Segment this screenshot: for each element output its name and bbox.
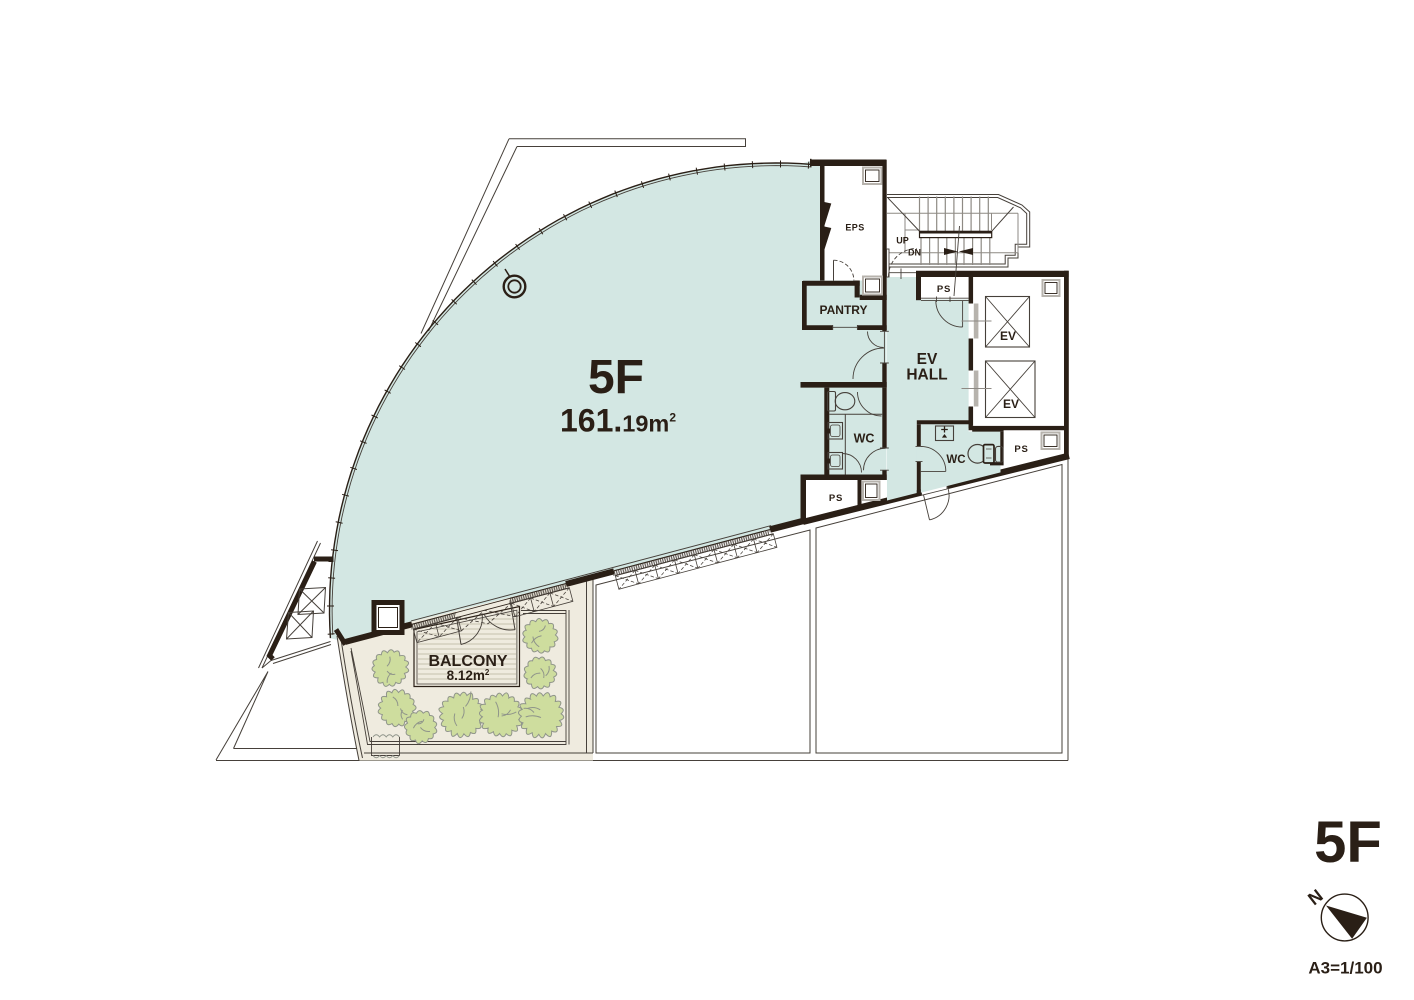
svg-text:8.12m2: 8.12m2 <box>447 668 490 683</box>
svg-text:HALL: HALL <box>906 367 947 384</box>
svg-text:5F: 5F <box>1314 810 1382 875</box>
svg-text:PS: PS <box>937 284 951 295</box>
svg-text:WC: WC <box>946 454 965 466</box>
svg-text:EV: EV <box>917 351 938 368</box>
svg-text:EV: EV <box>1000 329 1016 343</box>
svg-text:5F: 5F <box>588 351 644 404</box>
svg-text:EPS: EPS <box>845 223 864 233</box>
svg-text:PS: PS <box>1014 444 1028 455</box>
svg-text:WC: WC <box>854 432 875 446</box>
svg-text:PS: PS <box>829 493 843 504</box>
svg-text:PANTRY: PANTRY <box>820 303 868 317</box>
svg-text:A3=1/100: A3=1/100 <box>1308 959 1382 978</box>
svg-text:UP: UP <box>896 236 909 246</box>
svg-text:EV: EV <box>1003 397 1019 411</box>
